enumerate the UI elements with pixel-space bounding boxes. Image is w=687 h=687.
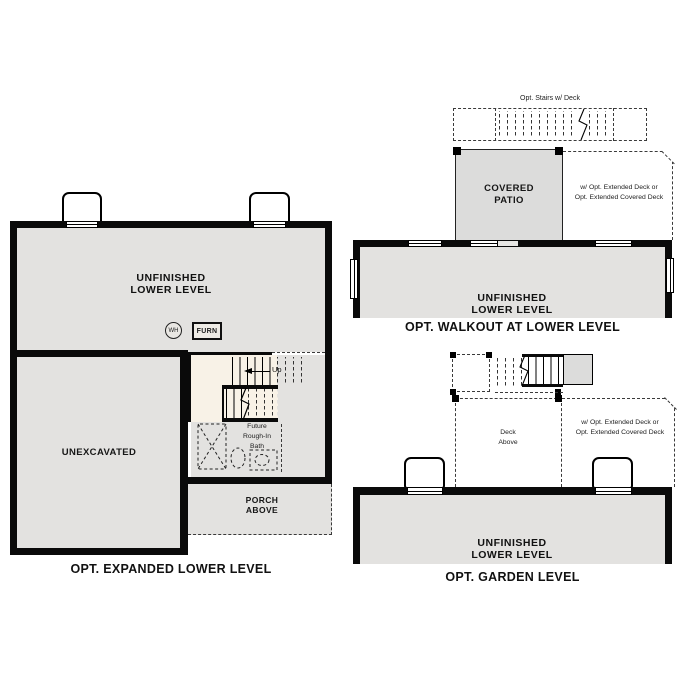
stairs-treads (528, 357, 563, 384)
corner-cut (662, 149, 675, 162)
wh-label: WH (169, 328, 179, 334)
up-label: Up (272, 365, 282, 374)
window-well (404, 457, 445, 489)
window (408, 240, 442, 247)
deck-post (555, 395, 562, 402)
room-label: UNFINISHED LOWER LEVEL (70, 272, 272, 296)
wall (353, 487, 360, 564)
room-label-line2: LOWER LEVEL (70, 284, 272, 296)
wall (10, 548, 188, 555)
opt-stairs-treads (499, 111, 576, 138)
porch-label-line1: PORCH (212, 495, 312, 505)
dashed-line (613, 108, 614, 141)
stair-landing-outline (452, 354, 490, 392)
opt-stairs-treads (589, 111, 613, 138)
patio-label-line1: COVERED (459, 183, 559, 195)
deck-post (450, 352, 456, 358)
corner-cut (665, 396, 677, 408)
window (350, 259, 358, 299)
deck-label-line1: Deck (458, 428, 558, 438)
up-arrow-line (251, 371, 270, 372)
window (407, 487, 443, 495)
wall (325, 221, 332, 484)
window-well (249, 192, 290, 224)
dashed-line (495, 392, 563, 393)
deck-post (486, 352, 492, 358)
dashed-line (272, 352, 325, 353)
patio-label-line2: PATIO (459, 195, 559, 207)
window (253, 221, 286, 228)
dashed-line (281, 424, 282, 472)
deck-label-line2: Above (458, 438, 558, 448)
wall (665, 487, 672, 564)
stairs-lower-run-dashed (248, 389, 278, 418)
room-label: UNFINISHED LOWER LEVEL (412, 537, 612, 561)
extended-deck-note: w/ Opt. Extended Deck or Opt. Extended C… (565, 418, 675, 438)
room-label-line2: LOWER LEVEL (412, 549, 612, 561)
deck-note-line1: w/ Opt. Extended Deck or (565, 183, 673, 193)
wall (188, 352, 272, 355)
stair-upper-landing (563, 354, 593, 385)
bath-label-line3: Bath (237, 442, 277, 452)
deck-post (555, 147, 563, 155)
deck-post (453, 147, 461, 155)
window-well (592, 457, 633, 489)
toilet-symbol (250, 450, 277, 470)
bath-label-line2: Rough-In (237, 432, 277, 442)
dashed-line (495, 108, 496, 141)
floorplan-sheet: UNFINISHED LOWER LEVEL WH FURN UNEXCAVAT… (0, 0, 687, 687)
water-heater-symbol: WH (165, 322, 182, 339)
room-label: UNFINISHED LOWER LEVEL (412, 292, 612, 316)
wall (180, 350, 188, 555)
plan-title-garden: OPT. GARDEN LEVEL (353, 570, 672, 584)
wall (188, 477, 332, 484)
bath-label: Future Rough-In Bath (237, 422, 277, 453)
opt-stairs-label: Opt. Stairs w/ Deck (453, 94, 647, 105)
window (470, 240, 498, 247)
break-line-icon (238, 388, 252, 420)
room-label-line1: UNFINISHED (412, 292, 612, 304)
covered-patio-label: COVERED PATIO (459, 183, 559, 206)
room-label-line1: UNFINISHED (70, 272, 272, 284)
room-label-line2: LOWER LEVEL (412, 304, 612, 316)
window (66, 221, 98, 228)
deck-note-line2: Opt. Extended Covered Deck (565, 193, 673, 203)
window (595, 487, 632, 495)
furnace-symbol: FURN (192, 322, 222, 340)
unexcavated-label: UNEXCAVATED (24, 447, 174, 458)
porch-label: PORCH ABOVE (212, 495, 312, 515)
deck-note-line2: Opt. Extended Covered Deck (565, 428, 675, 438)
room-label-line1: UNFINISHED (412, 537, 612, 549)
furn-label: FURN (197, 328, 218, 335)
deck-note-line1: w/ Opt. Extended Deck or (565, 418, 675, 428)
plan-title-expanded: OPT. EXPANDED LOWER LEVEL (10, 562, 332, 576)
extended-deck-note: w/ Opt. Extended Deck or Opt. Extended C… (565, 183, 673, 203)
bath-label-line1: Future (237, 422, 277, 432)
window (595, 240, 632, 247)
porch-label-line2: ABOVE (212, 505, 312, 515)
wall (222, 385, 224, 422)
wall (188, 352, 191, 422)
plan-title-walkout: OPT. WALKOUT AT LOWER LEVEL (353, 320, 672, 334)
window-well (62, 192, 102, 224)
wall (10, 350, 188, 357)
deck-post (452, 395, 459, 402)
window (666, 258, 674, 293)
deck-above-label: Deck Above (458, 428, 558, 448)
break-line-icon (577, 109, 589, 140)
patio-door-opening (498, 241, 518, 246)
wall (10, 221, 17, 555)
break-line-icon (518, 355, 530, 386)
